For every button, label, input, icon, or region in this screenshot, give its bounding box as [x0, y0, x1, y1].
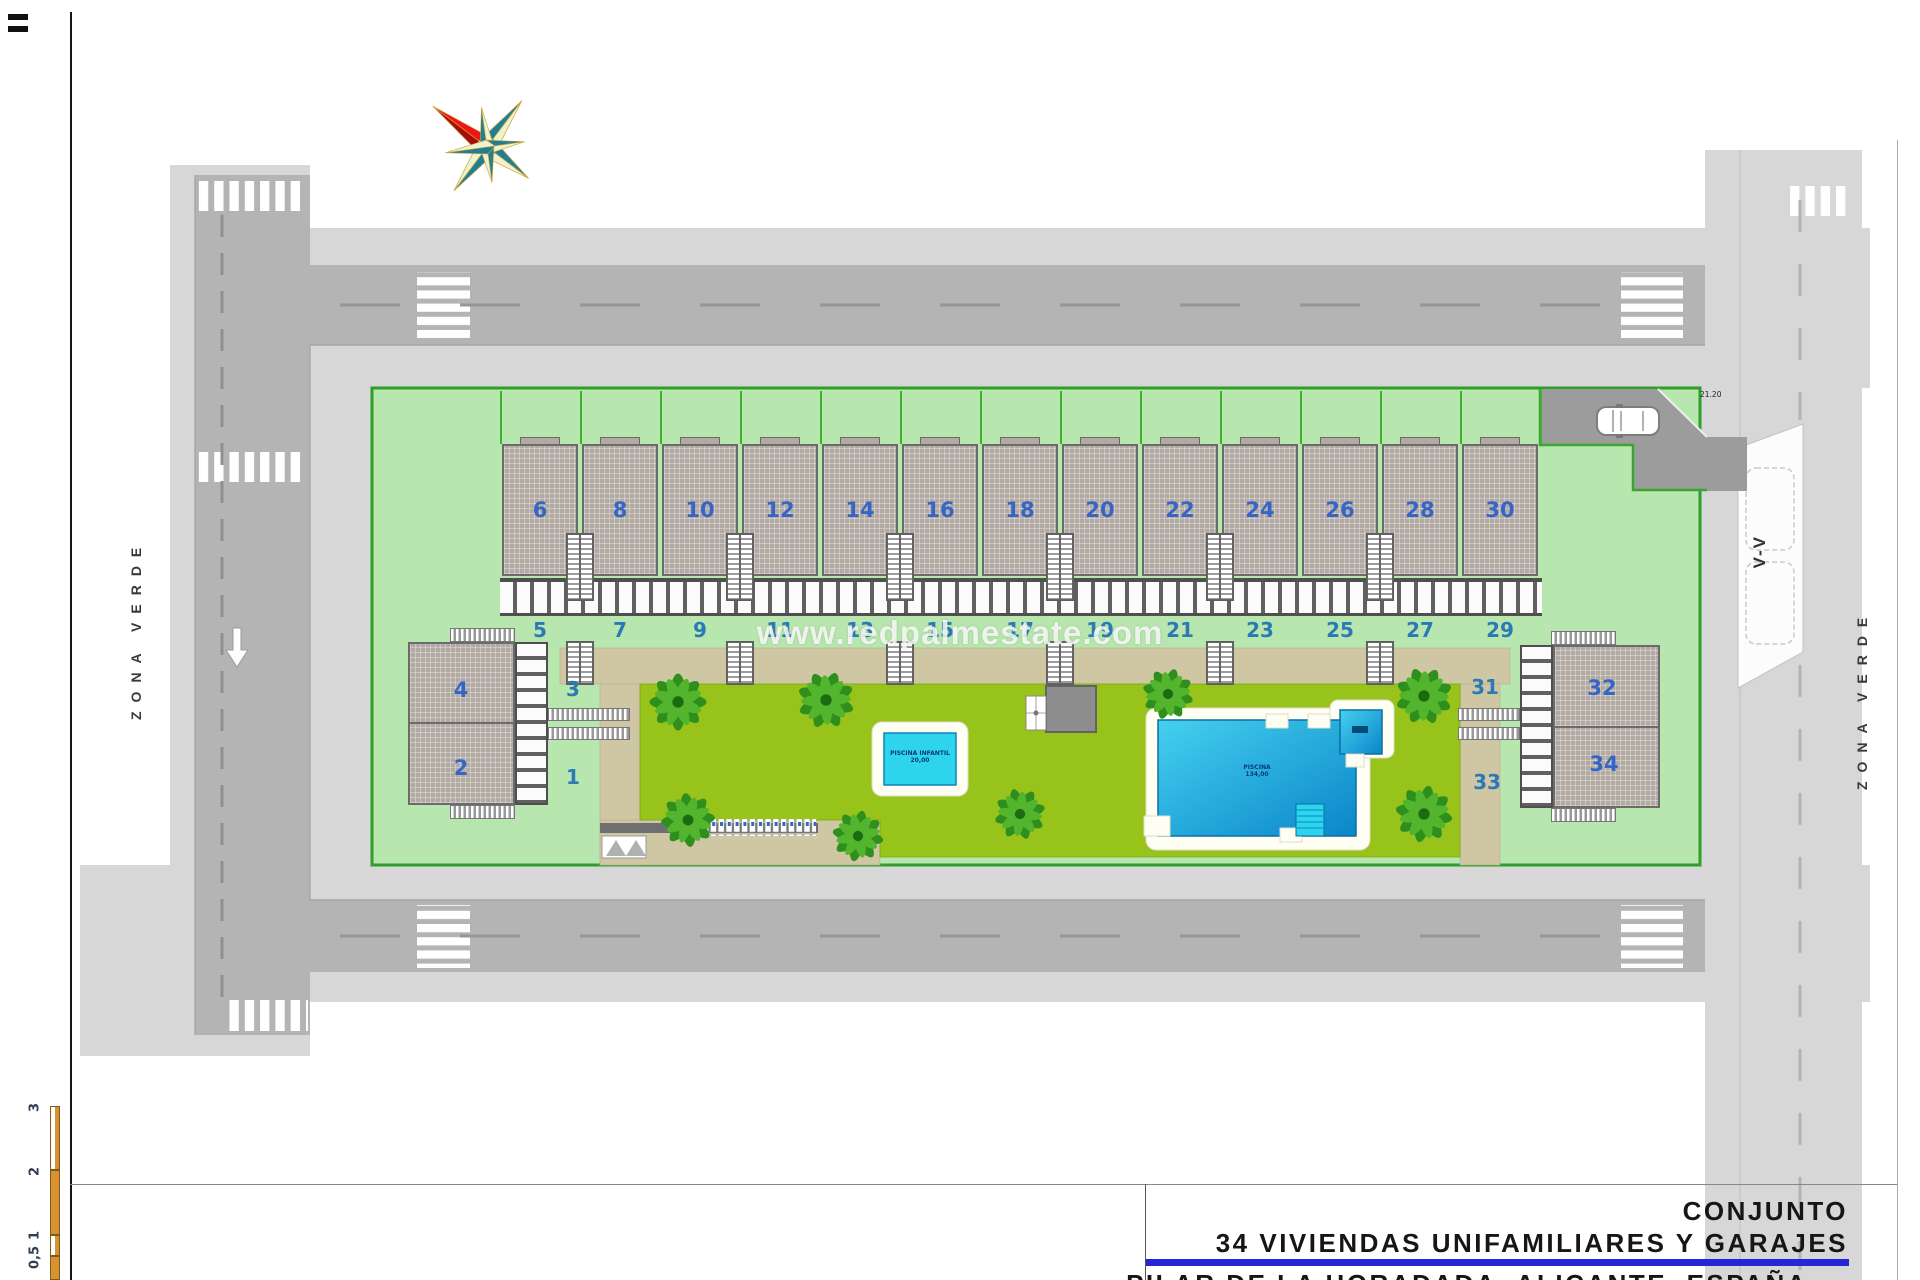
unit-number: 27: [1396, 618, 1444, 642]
unit-number: 4: [437, 678, 485, 702]
unit-number: 20: [1076, 498, 1124, 522]
footbridge: [1458, 708, 1520, 721]
unit-number: 7: [596, 618, 644, 642]
unit-number: 22: [1156, 498, 1204, 522]
fold-mark-icon: [8, 14, 28, 20]
title-line-3: PILAR DE LA HORADADA, ALICANTE, ESPAÑA: [1060, 1269, 1808, 1280]
unit-number: 29: [1476, 618, 1524, 642]
plot-divider-line: [1540, 391, 1542, 444]
unit-number: 12: [756, 498, 804, 522]
plot-divider-line: [1140, 391, 1142, 444]
plot-divider-line: [1060, 391, 1062, 444]
car-icon: [1597, 404, 1659, 438]
roof-divider: [1555, 726, 1658, 728]
plot-divider-line: [660, 391, 662, 444]
stairs: [566, 533, 594, 601]
title-line-2: 34 VIVIENDAS UNIFAMILIARES Y GARAJES: [1100, 1228, 1848, 1259]
parking-bay: [1738, 424, 1803, 688]
title-line-1: CONJUNTO: [1100, 1196, 1848, 1227]
unit-number: 23: [1236, 618, 1284, 642]
unit-number: 6: [516, 498, 564, 522]
unit-number: 25: [1316, 618, 1364, 642]
plot-divider-line: [900, 391, 902, 444]
stairs: [1366, 641, 1394, 685]
unit-number: 5: [516, 618, 564, 642]
crosswalk-northwest: [198, 181, 305, 211]
unit-number: 33: [1463, 770, 1511, 794]
unit-number: 10: [676, 498, 724, 522]
site-plan-canvas: 6587109121114131615181720192221242326252…: [0, 0, 1920, 1280]
unit-number: 1: [549, 765, 597, 789]
small-pool-label: PISCINA INFANTIL 20,00: [875, 750, 965, 764]
plot-divider-line: [1220, 391, 1222, 444]
scale-tick-label: 3: [28, 1093, 43, 1123]
plot-divider-line: [1380, 391, 1382, 444]
footbridge: [548, 727, 630, 740]
unit-number: 16: [916, 498, 964, 522]
crosswalk-west: [198, 452, 305, 482]
sheet-border-bottom: [70, 1184, 1897, 1185]
stairs: [1366, 533, 1394, 601]
ramp: [602, 836, 646, 858]
fold-mark-icon: [8, 26, 28, 32]
unit-number: 31: [1461, 675, 1509, 699]
stairs: [1046, 533, 1074, 601]
dimension-label: 21.20: [1700, 390, 1721, 399]
scale-tick-label: 2: [28, 1157, 43, 1187]
title-underline: [1145, 1259, 1849, 1266]
crosswalk-south-right: [1621, 905, 1683, 968]
stairs: [1551, 808, 1616, 822]
plot-divider-line: [1460, 391, 1462, 444]
pool-steps: [1296, 804, 1324, 836]
large-pool-label: PISCINA 134,00: [1212, 764, 1302, 778]
unit-number: 24: [1236, 498, 1284, 522]
plot-divider-line: [1300, 391, 1302, 444]
stairs: [726, 533, 754, 601]
sheet-border-left: [70, 12, 72, 1280]
unit-number: 28: [1396, 498, 1444, 522]
stairs: [1206, 533, 1234, 601]
unit-number: 8: [596, 498, 644, 522]
plot-divider-line: [740, 391, 742, 444]
unit-number: 14: [836, 498, 884, 522]
zona-verde-label-west: ZONA VERDE: [128, 420, 144, 720]
plot-divider-line: [500, 391, 502, 444]
unit-number: 2: [437, 756, 485, 780]
footbridge: [548, 708, 630, 721]
stairs: [886, 533, 914, 601]
stairs: [1206, 641, 1234, 685]
stairs: [1551, 631, 1616, 645]
zona-verde-label-east: ZONA VERDE: [1854, 490, 1870, 790]
crosswalk-southwest: [228, 1000, 308, 1031]
scale-tick-label: 0,5: [28, 1243, 43, 1273]
stairs: [450, 628, 515, 642]
pergola: [515, 642, 548, 805]
crosswalk-northeast: [1789, 186, 1851, 216]
unit-number: 30: [1476, 498, 1524, 522]
unit-number: 18: [996, 498, 1044, 522]
title-block-divider: [1145, 1184, 1146, 1280]
watermark: www.redpalmestate.com: [740, 614, 1180, 652]
pergola: [1520, 645, 1553, 808]
unit-number: 26: [1316, 498, 1364, 522]
sheet-border-right: [1897, 140, 1898, 1280]
unit-number: 32: [1578, 676, 1626, 700]
plot-divider-line: [980, 391, 982, 444]
unit-number: 3: [549, 677, 597, 701]
plot-divider-line: [580, 391, 582, 444]
roof-divider: [410, 722, 513, 724]
stairs: [450, 805, 515, 819]
unit-number: 34: [1580, 752, 1628, 776]
footbridge: [1458, 727, 1520, 740]
plot-divider-line: [820, 391, 822, 444]
section-marker-label: V-V: [1750, 535, 1770, 568]
unit-number: 9: [676, 618, 724, 642]
crosswalk-north-right: [1621, 272, 1683, 338]
palm-tree-icon: [650, 674, 707, 731]
compass-rose-icon: [400, 60, 564, 222]
